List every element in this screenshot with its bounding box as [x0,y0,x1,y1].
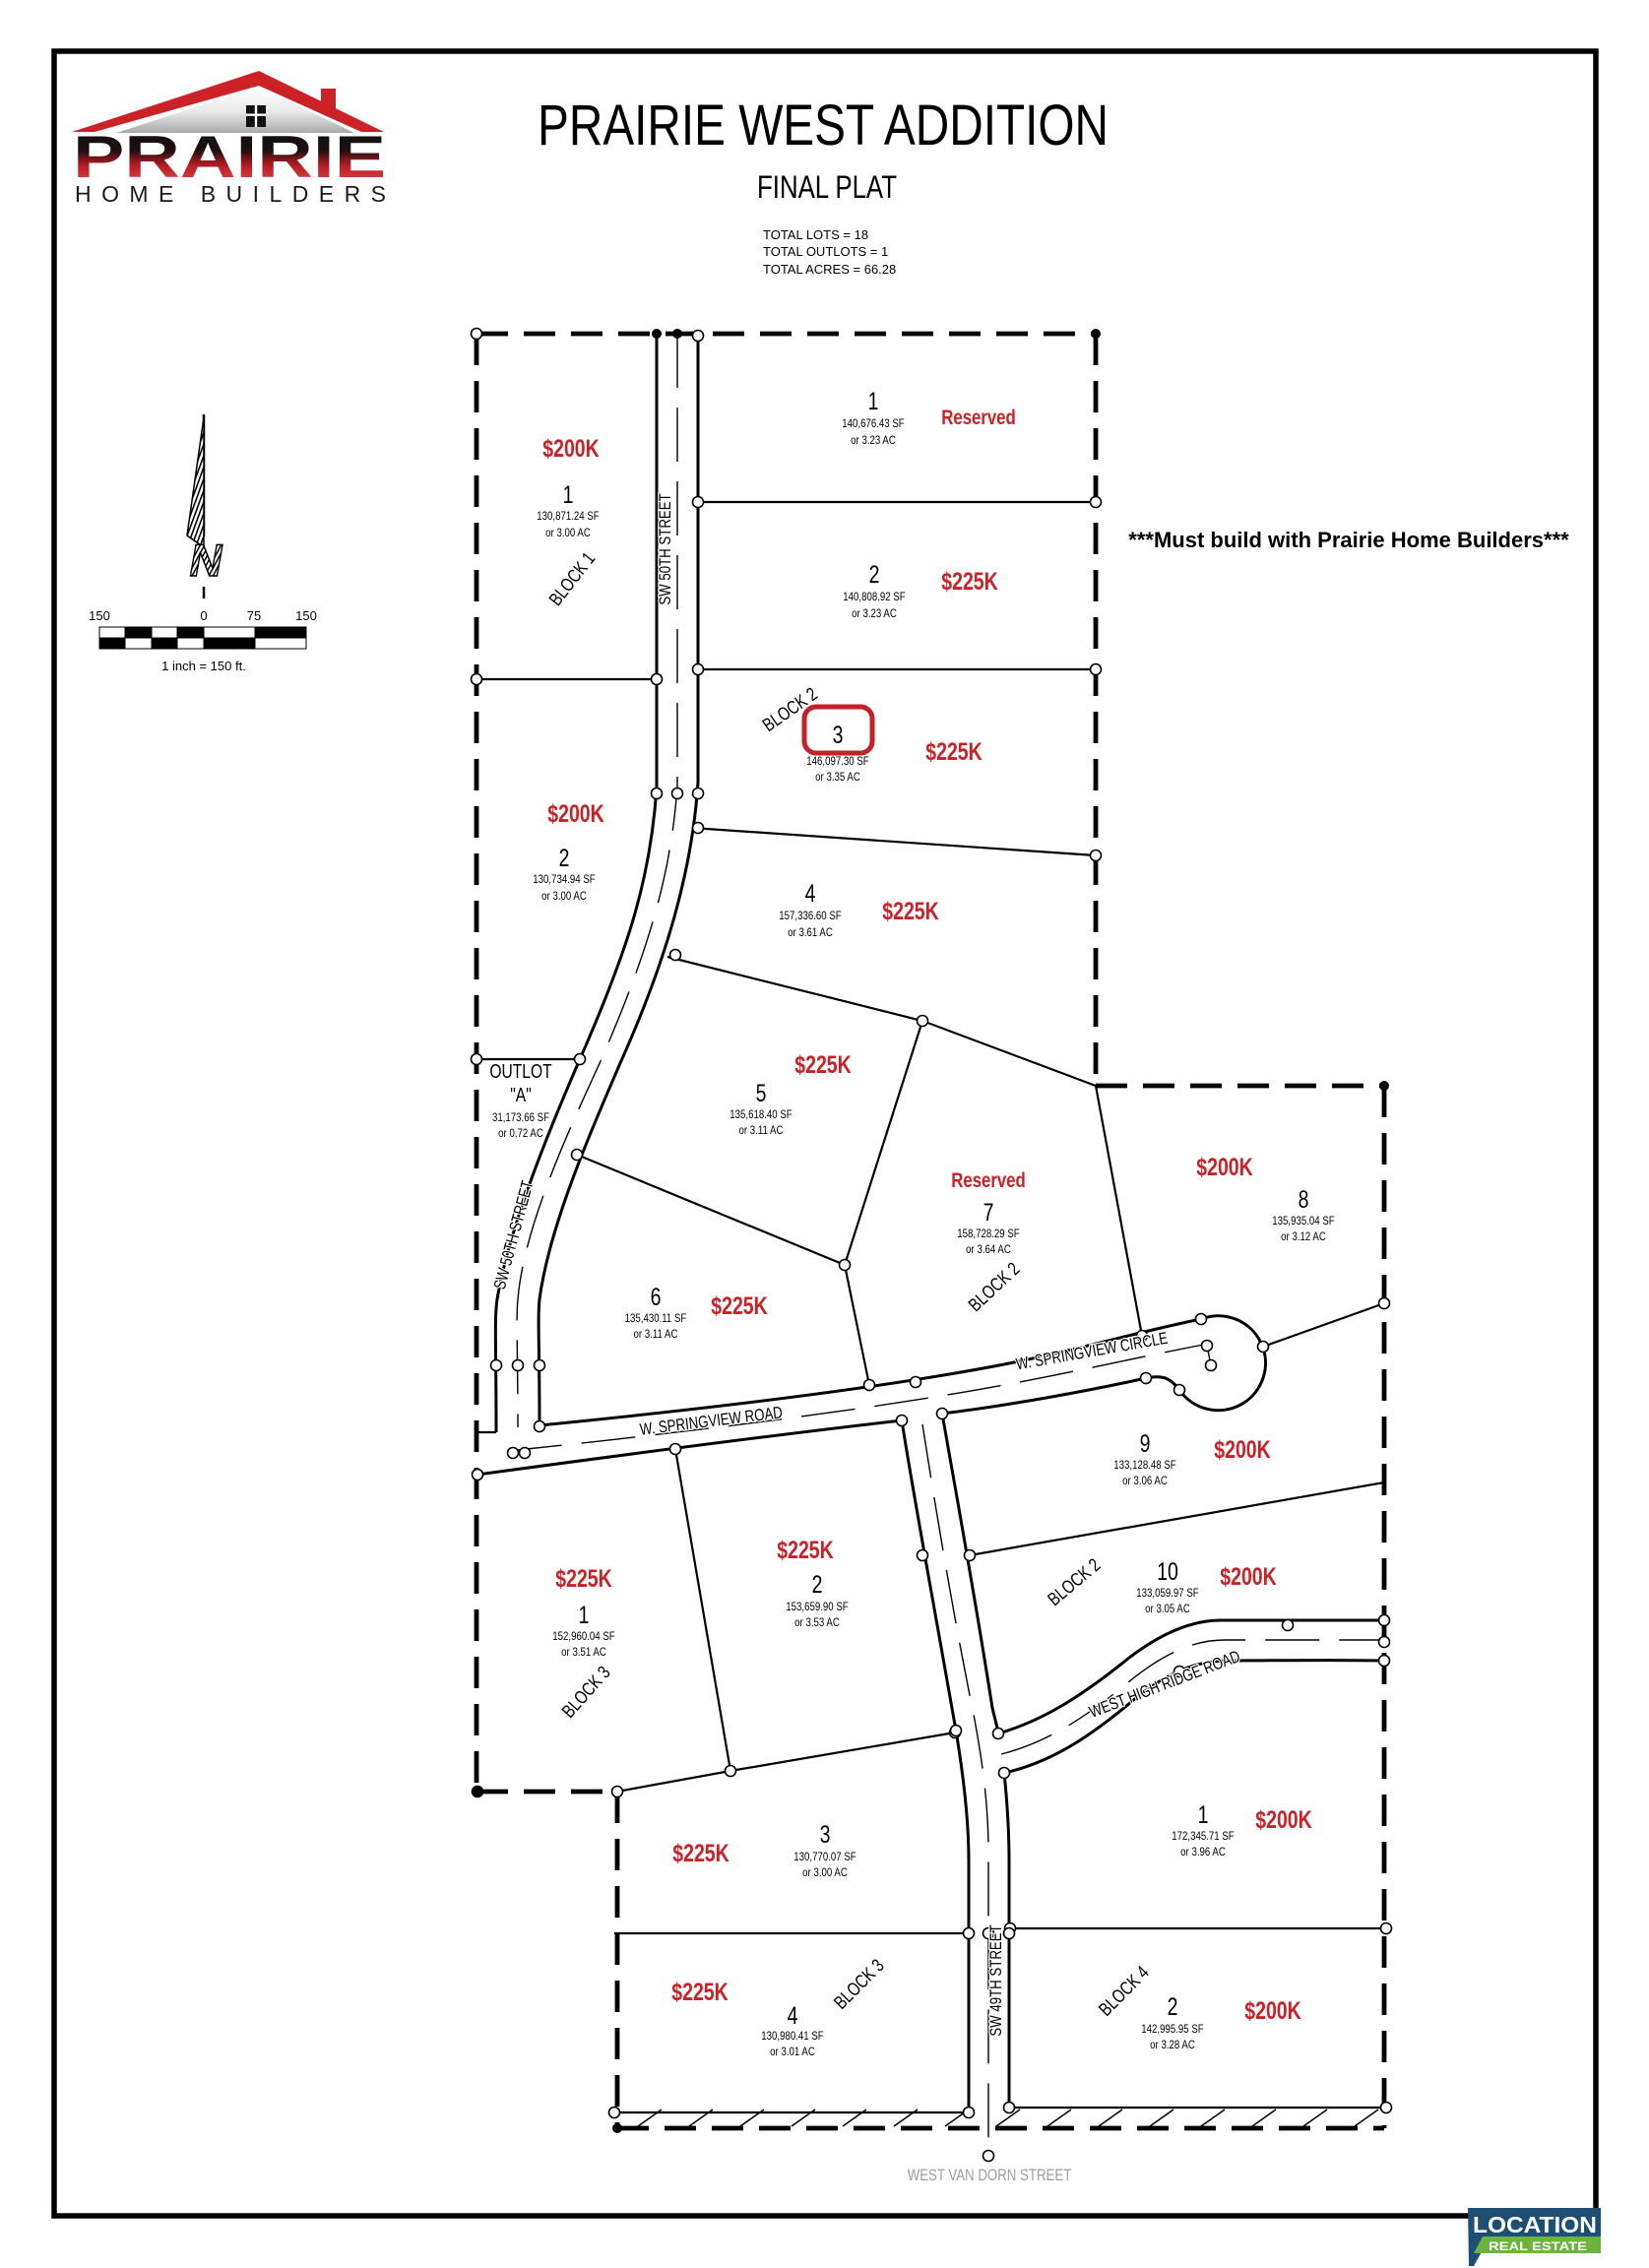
svg-text:133,059.97 SF: 133,059.97 SF [1136,1587,1199,1600]
svg-text:or 3.96 AC: or 3.96 AC [1180,1846,1226,1858]
svg-text:10: 10 [1157,1558,1178,1586]
svg-text:or 3.51 AC: or 3.51 AC [561,1646,606,1659]
svg-text:$225K: $225K [672,1840,729,1867]
svg-text:31,173.66 SF: 31,173.66 SF [492,1111,549,1124]
svg-text:$225K: $225K [794,1051,851,1079]
svg-text:SW 49TH STREET: SW 49TH STREET [987,1924,1006,2036]
svg-text:4: 4 [788,2002,798,2030]
svg-text:$225K: $225K [777,1537,833,1564]
svg-text:140,676.43 SF: 140,676.43 SF [842,417,905,430]
svg-text:158,728.29 SF: 158,728.29 SF [957,1228,1020,1240]
svg-text:$200K: $200K [1220,1563,1276,1591]
svg-text:135,430.11 SF: 135,430.11 SF [625,1312,687,1325]
svg-text:152,960.04 SF: 152,960.04 SF [552,1630,615,1643]
svg-text:or 3.28 AC: or 3.28 AC [1150,2039,1195,2051]
svg-text:130,871.24 SF: 130,871.24 SF [537,510,600,523]
svg-text:$225K: $225K [941,568,997,596]
svg-text:$200K: $200K [1255,1806,1311,1834]
svg-text:"A": "A" [510,1084,531,1105]
svg-text:3: 3 [820,1821,831,1849]
svg-text:9: 9 [1140,1430,1151,1458]
svg-text:or 3.35 AC: or 3.35 AC [815,771,860,784]
svg-text:1: 1 [1198,1801,1209,1829]
svg-text:***Must build with Prairie Hom: ***Must build with Prairie Home Builders… [1128,528,1569,552]
svg-text:$225K: $225K [711,1292,767,1320]
svg-text:2: 2 [559,845,570,872]
svg-text:5: 5 [756,1080,767,1107]
svg-text:or 3.11 AC: or 3.11 AC [634,1328,678,1341]
svg-text:0: 0 [200,608,207,623]
svg-text:OUTLOT: OUTLOT [489,1060,551,1082]
svg-text:6: 6 [651,1284,662,1311]
svg-text:Reserved: Reserved [941,407,1015,429]
svg-text:$200K: $200K [542,435,599,463]
svg-text:2: 2 [1168,1993,1178,2021]
svg-text:4: 4 [805,880,816,908]
svg-text:or 3.00 AC: or 3.00 AC [541,890,587,903]
svg-text:133,128.48 SF: 133,128.48 SF [1113,1459,1176,1472]
svg-text:130,734.94 SF: 130,734.94 SF [533,873,596,886]
svg-text:TOTAL ACRES = 66.28: TOTAL ACRES = 66.28 [763,262,896,277]
svg-text:or 3.05 AC: or 3.05 AC [1145,1603,1190,1615]
svg-text:or 3.06 AC: or 3.06 AC [1122,1475,1168,1487]
svg-text:1: 1 [868,388,879,415]
svg-text:75: 75 [247,608,261,623]
svg-text:or 3.01 AC: or 3.01 AC [770,2046,815,2058]
svg-text:1: 1 [579,1602,590,1629]
svg-text:or 3.23 AC: or 3.23 AC [852,607,897,620]
svg-text:7: 7 [983,1199,994,1227]
svg-text:$200K: $200K [1196,1154,1252,1181]
svg-text:135,935.04 SF: 135,935.04 SF [1272,1215,1335,1228]
svg-text:146,097.30 SF: 146,097.30 SF [806,755,869,768]
svg-text:WEST VAN DORN STREET: WEST VAN DORN STREET [908,2167,1072,2185]
svg-text:150: 150 [295,608,317,623]
svg-text:Reserved: Reserved [951,1169,1025,1192]
svg-text:or 3.11 AC: or 3.11 AC [739,1124,784,1137]
svg-text:$225K: $225K [882,898,938,925]
svg-text:$200K: $200K [1214,1436,1270,1464]
svg-text:$225K: $225K [925,738,982,766]
svg-text:TOTAL OUTLOTS = 1: TOTAL OUTLOTS = 1 [763,244,888,259]
svg-text:or 3.00 AC: or 3.00 AC [802,1866,848,1879]
svg-text:$225K: $225K [671,1979,728,2006]
svg-text:or 3.53 AC: or 3.53 AC [794,1616,840,1629]
svg-text:3: 3 [833,722,844,749]
svg-text:157,336.60 SF: 157,336.60 SF [779,910,842,922]
svg-text:150: 150 [89,608,110,623]
svg-text:REAL ESTATE: REAL ESTATE [1489,2241,1587,2253]
svg-text:PRAIRIE WEST ADDITION: PRAIRIE WEST ADDITION [538,94,1109,157]
svg-text:or 3.00 AC: or 3.00 AC [545,527,591,539]
svg-text:$200K: $200K [547,800,603,828]
svg-text:$225K: $225K [555,1565,611,1593]
svg-text:$200K: $200K [1244,1997,1300,2025]
svg-text:or 3.61 AC: or 3.61 AC [788,926,833,939]
svg-text:2: 2 [869,561,880,589]
svg-text:or 3.64 AC: or 3.64 AC [966,1243,1011,1256]
svg-text:or 3.23 AC: or 3.23 AC [851,434,896,447]
svg-text:140,808.92 SF: 140,808.92 SF [843,591,906,603]
svg-text:130,980.41 SF: 130,980.41 SF [761,2030,824,2043]
svg-text:142,995.95 SF: 142,995.95 SF [1141,2023,1204,2036]
svg-text:TOTAL LOTS = 18: TOTAL LOTS = 18 [763,227,868,242]
svg-text:or 3.12 AC: or 3.12 AC [1281,1230,1326,1243]
svg-text:2: 2 [812,1571,823,1599]
svg-text:8: 8 [1299,1186,1309,1214]
svg-text:172,345.71 SF: 172,345.71 SF [1172,1830,1235,1843]
svg-text:153,659.90 SF: 153,659.90 SF [786,1601,849,1613]
svg-text:or 0.72 AC: or 0.72 AC [498,1127,543,1140]
svg-text:LOCATION: LOCATION [1473,2212,1597,2237]
svg-text:1 inch = 150 ft.: 1 inch = 150 ft. [161,659,246,673]
svg-text:130,770.07 SF: 130,770.07 SF [793,1851,856,1863]
svg-text:1: 1 [563,481,574,509]
svg-text:FINAL PLAT: FINAL PLAT [757,169,897,205]
svg-text:PRAIRIE: PRAIRIE [73,124,386,190]
svg-text:135,618.40 SF: 135,618.40 SF [729,1108,793,1121]
svg-text:SW 50TH STREET: SW 50TH STREET [657,493,675,604]
